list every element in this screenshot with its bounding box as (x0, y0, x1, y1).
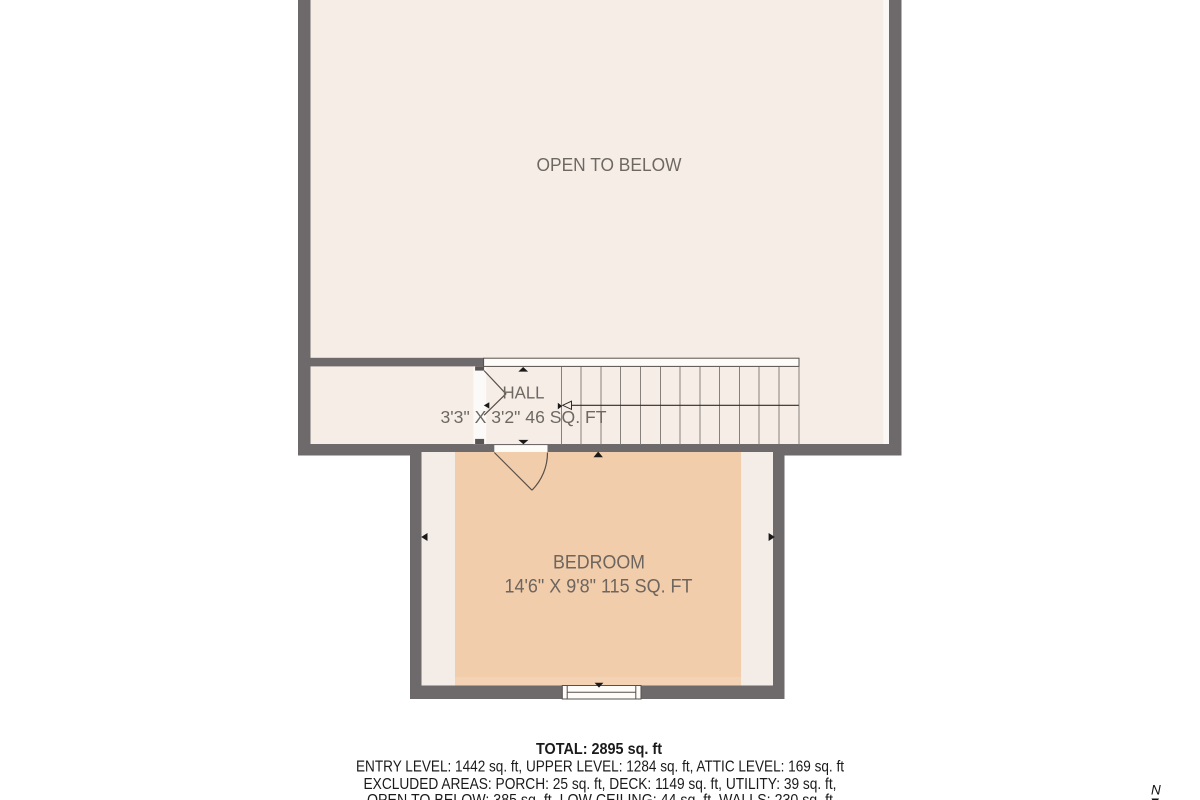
svg-text:BEDROOM: BEDROOM (553, 552, 645, 574)
svg-text:N: N (1151, 783, 1161, 798)
svg-text:3'3" X 3'2" 46 SQ. FT: 3'3" X 3'2" 46 SQ. FT (441, 407, 607, 427)
svg-text:OPEN TO BELOW: OPEN TO BELOW (537, 154, 682, 175)
svg-text:14'6" X 9'8" 115 SQ. FT: 14'6" X 9'8" 115 SQ. FT (505, 576, 693, 598)
svg-text:ENTRY LEVEL: 1442 sq. ft, UPPE: ENTRY LEVEL: 1442 sq. ft, UPPER LEVEL: 1… (356, 759, 845, 776)
svg-text:EXCLUDED AREAS: PORCH: 25 sq.: EXCLUDED AREAS: PORCH: 25 sq. ft, DECK: … (364, 776, 837, 793)
svg-text:HALL: HALL (503, 383, 545, 403)
svg-text:TOTAL: 2895 sq. ft: TOTAL: 2895 sq. ft (536, 741, 662, 758)
svg-text:OPEN TO BELOW: 385 sq. ft, LOW: OPEN TO BELOW: 385 sq. ft, LOW CEILING: … (367, 792, 834, 800)
